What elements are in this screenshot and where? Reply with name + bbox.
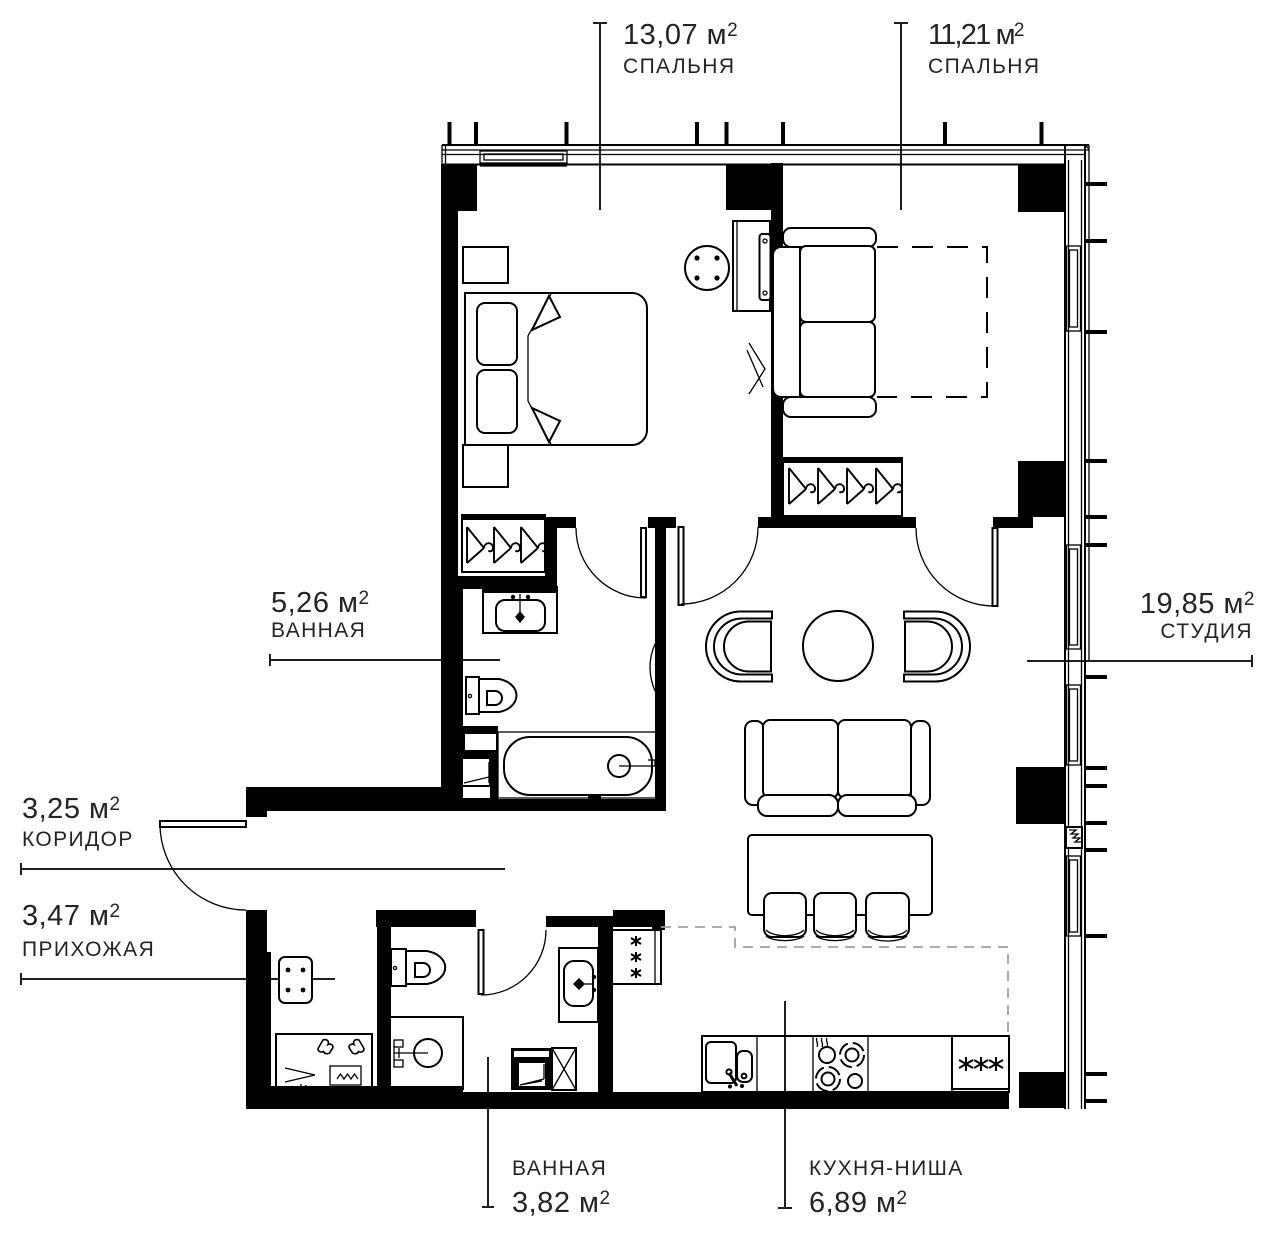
svg-text:СТУДИЯ: СТУДИЯ: [1160, 620, 1253, 643]
svg-text:3,82 м2: 3,82 м2: [512, 1187, 611, 1219]
svg-text:6,89 м2: 6,89 м2: [809, 1187, 908, 1219]
svg-text:СПАЛЬНЯ: СПАЛЬНЯ: [623, 55, 735, 78]
svg-text:ВАННАЯ: ВАННАЯ: [512, 1157, 607, 1180]
svg-text:ВАННАЯ: ВАННАЯ: [271, 619, 366, 642]
svg-text:5,26 м2: 5,26 м2: [271, 587, 370, 619]
svg-text:13,07 м2: 13,07 м2: [623, 19, 738, 51]
svg-text:3,47 м2: 3,47 м2: [22, 900, 121, 932]
svg-text:ПРИХОЖАЯ: ПРИХОЖАЯ: [22, 938, 155, 961]
svg-text:19,85 м2: 19,85 м2: [1140, 588, 1255, 620]
svg-text:КОРИДОР: КОРИДОР: [22, 828, 134, 851]
svg-text:СПАЛЬНЯ: СПАЛЬНЯ: [928, 55, 1040, 78]
svg-text:КУХНЯ-НИША: КУХНЯ-НИША: [809, 1157, 964, 1180]
svg-text:11,21 м2: 11,21 м2: [928, 19, 1024, 51]
svg-text:3,25 м2: 3,25 м2: [22, 793, 121, 825]
